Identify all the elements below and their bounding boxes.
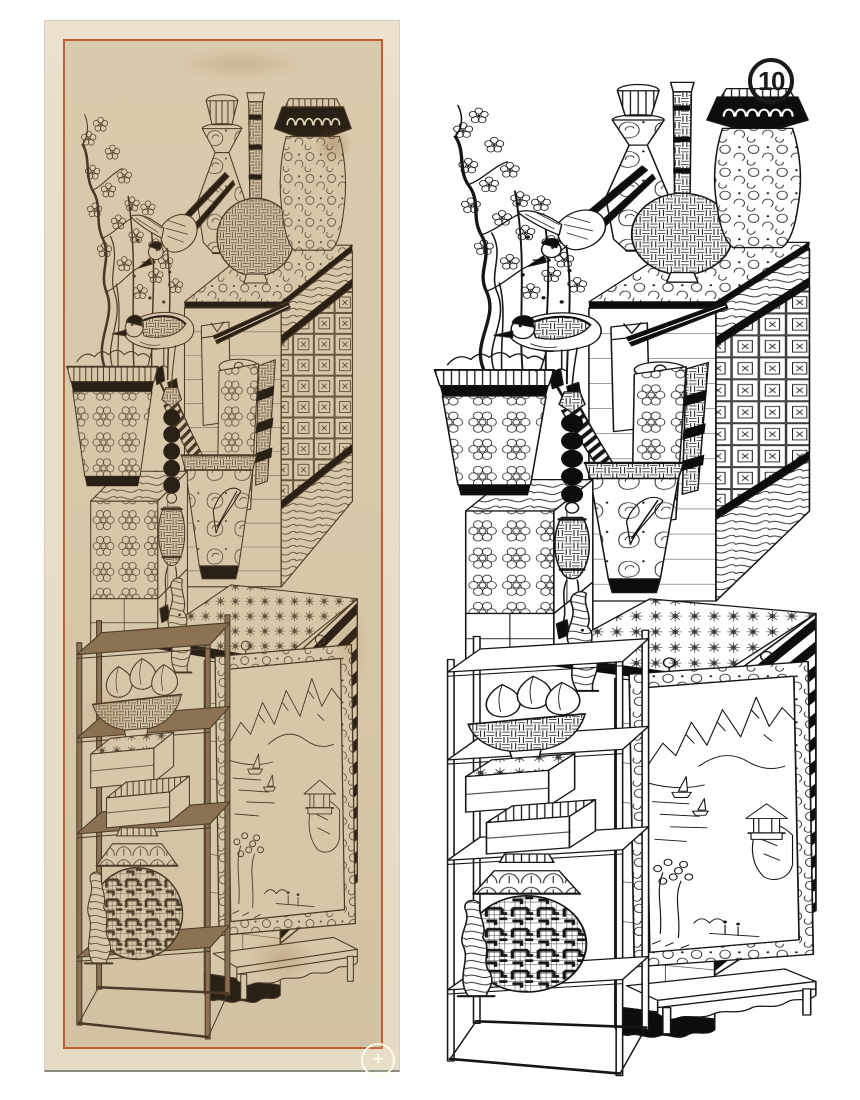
zoom-in-button[interactable]: +	[361, 1043, 395, 1077]
figure-number: 10	[758, 66, 784, 97]
chaekgeori-painting	[63, 39, 383, 1049]
painting-artwork-svg	[65, 41, 381, 1047]
plus-icon: +	[372, 1049, 383, 1070]
figure-number-badge: 10	[748, 58, 794, 104]
line-drawing-svg	[432, 28, 847, 1084]
page: + 10	[0, 0, 860, 1100]
painting-photo-panel: +	[44, 20, 400, 1072]
line-drawing-panel	[432, 28, 847, 1086]
